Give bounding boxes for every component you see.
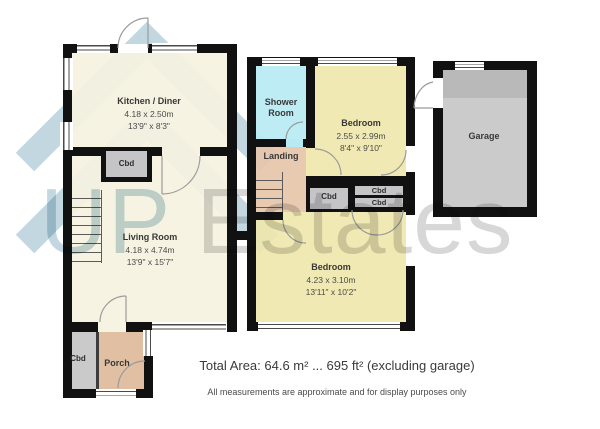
door-arc [100, 296, 126, 322]
door-arc [162, 156, 200, 194]
door-arc [283, 220, 306, 243]
door-arc [286, 122, 303, 139]
door-arcs-layer [0, 0, 600, 429]
door-arc [352, 210, 377, 235]
door-arc [118, 361, 145, 388]
door-arc [381, 150, 406, 175]
door-arc [414, 82, 433, 108]
door-arc [315, 149, 341, 175]
floorplan: Kitchen / Diner 4.18 x 2.50m 13'9" x 8'3… [0, 0, 600, 429]
door-arc [118, 18, 148, 48]
door-arc [377, 210, 403, 235]
